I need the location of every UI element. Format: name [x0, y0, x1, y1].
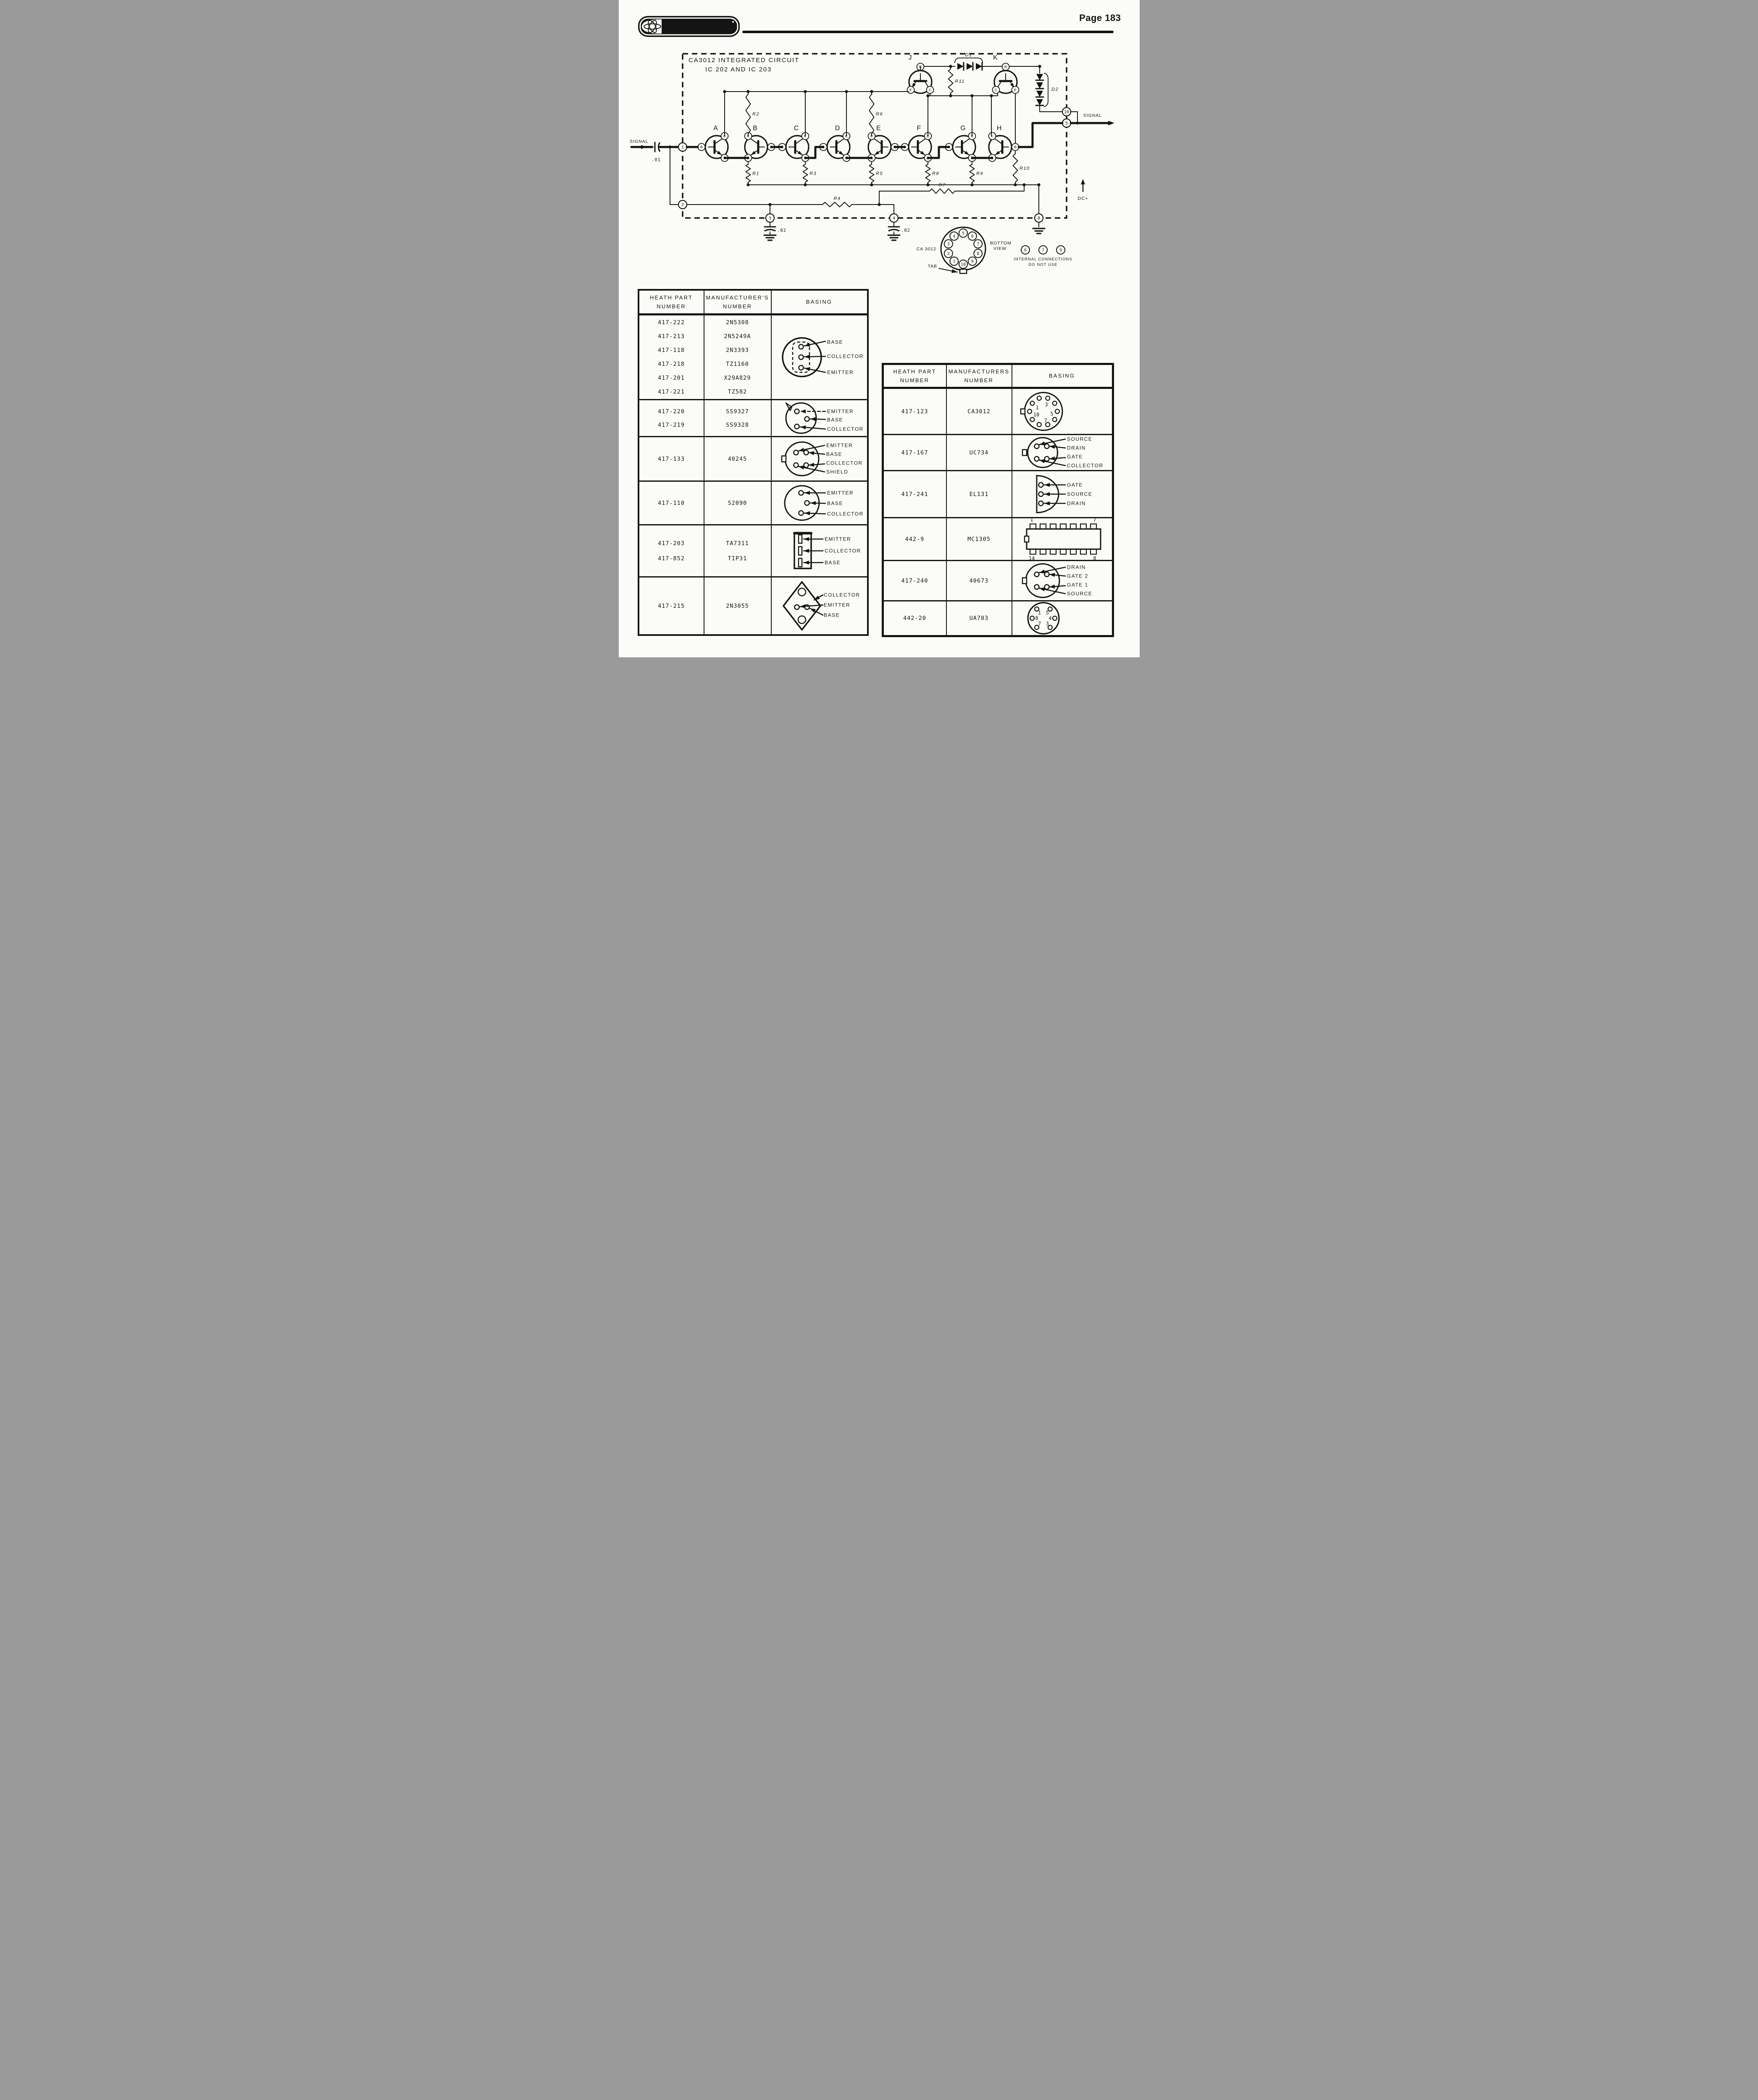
- basing-cell: 17148: [1012, 518, 1112, 560]
- svg-text:3: 3: [1045, 402, 1048, 408]
- tab-notch: [782, 456, 786, 462]
- basing-cell: 158473: [1012, 601, 1112, 635]
- basing-figure: GATESOURCEDRAIN: [1012, 471, 1112, 517]
- transistor-F: CEBF: [901, 125, 931, 162]
- svg-text:R3: R3: [809, 171, 817, 176]
- internal-connections-note: 679INTERNAL CONNECTIONSDO NOT USE: [1014, 246, 1072, 267]
- transistor-basing-table: HEATH PARTNUMBERMANUFACTURER'SNUMBERBASI…: [638, 289, 869, 636]
- manufacturer-number: EL131: [970, 490, 989, 499]
- manufacturer-number: 2N5308: [726, 318, 749, 327]
- heath-part-number: 417-167: [901, 449, 928, 457]
- transistor-B: CEBB: [744, 125, 775, 162]
- heath-part-cell: 417-222417-213417-118417-218417-201417-2…: [639, 315, 704, 399]
- svg-text:R1: R1: [752, 171, 759, 176]
- resistor-R7: R7: [930, 183, 955, 194]
- manufacturer-number: UC734: [970, 449, 989, 457]
- ic-basing-table: HEATH PARTNUMBERMANUFACTURERSNUMBERBASIN…: [882, 363, 1114, 637]
- svg-text:SHIELD: SHIELD: [826, 469, 848, 475]
- svg-text:5: 5: [1065, 121, 1067, 126]
- svg-text:5: 5: [1050, 411, 1053, 417]
- basing-diagram-to5-4pin: EMITTERBASECOLLECTORSHIELD: [782, 442, 863, 476]
- basing-cell: SOURCEDRAINGATECOLLECTOR: [1012, 435, 1112, 470]
- svg-text:A: A: [713, 125, 718, 132]
- column-header: MANUFACTURERSNUMBER: [947, 365, 1012, 387]
- column-header: MANUFACTURER'SNUMBER: [704, 291, 772, 313]
- basing-diagram-dip14: 17148: [1025, 518, 1101, 560]
- heath-part-number: 417-133: [658, 455, 685, 463]
- tab-label: TAB: [928, 264, 937, 269]
- header-line: BASING: [806, 297, 832, 306]
- signal-in-label: SIGNAL: [630, 139, 649, 144]
- basing-cell: EMITTERCOLLECTORBASE: [772, 525, 867, 576]
- svg-text:4: 4: [892, 216, 895, 221]
- svg-text:G: G: [960, 125, 966, 132]
- diode-group-D1: D1: [955, 52, 983, 70]
- basing-figure: BASECOLLECTOREMITTER: [772, 315, 867, 399]
- svg-text:B: B: [753, 125, 758, 132]
- tab-notch: [1022, 450, 1027, 456]
- manufacturer-number: CA3012: [967, 407, 991, 416]
- manufacturer-cell: 2N3055: [704, 577, 772, 634]
- basing-diagram-to5-4pin: DRAINGATE 2GATE 1SOURCE: [1022, 564, 1092, 598]
- svg-text:D: D: [835, 125, 840, 132]
- table-row: 442-9MC130517148: [884, 517, 1112, 560]
- schematic-subtitle: IC 202 AND IC 203: [705, 66, 772, 73]
- svg-text:3: 3: [1046, 621, 1048, 627]
- svg-text:EMITTER: EMITTER: [824, 602, 850, 608]
- heath-part-number: 417-215: [658, 602, 685, 610]
- heath-part-number: 417-123: [901, 407, 928, 416]
- column-header: BASING: [772, 291, 867, 313]
- basing-cell: DRAINGATE 2GATE 1SOURCE: [1012, 561, 1112, 600]
- header-line: NUMBER: [723, 302, 752, 311]
- svg-text:2: 2: [947, 252, 949, 256]
- svg-text:6: 6: [1024, 248, 1027, 253]
- basing-diagram-to5-4pin: SOURCEDRAINGATECOLLECTOR: [1022, 436, 1104, 469]
- basing-diagram-to5-6pin: 158473: [1028, 603, 1059, 634]
- svg-text:R10: R10: [1020, 166, 1030, 171]
- svg-text:D2: D2: [1051, 87, 1059, 92]
- table-row: 417-2152N3055COLLECTOREMITTERBASE: [639, 576, 867, 634]
- heath-part-number: 442-9: [905, 535, 925, 543]
- manufacturer-number: 40673: [970, 577, 989, 585]
- svg-text:EMITTER: EMITTER: [825, 536, 851, 542]
- heath-part-number: 417-221: [658, 388, 685, 396]
- heath-part-cell: 417-241: [884, 471, 947, 517]
- svg-text:R2: R2: [752, 112, 759, 117]
- svg-text:R7: R7: [938, 183, 946, 188]
- header-line: NUMBER: [657, 302, 686, 311]
- heath-part-cell: 442-9: [884, 518, 947, 560]
- transistor-G: CEBG: [945, 125, 975, 162]
- svg-text:D1: D1: [965, 52, 972, 58]
- manufacturer-cell: S2090: [704, 482, 772, 524]
- svg-text:GATE: GATE: [1067, 454, 1083, 460]
- manufacturer-cell: CA3012: [947, 389, 1012, 434]
- svg-text:B: B: [1014, 145, 1017, 149]
- diode-group-D2: D2: [1036, 73, 1059, 107]
- svg-text:4: 4: [1048, 615, 1051, 621]
- svg-text:3: 3: [947, 242, 949, 247]
- basing-diagram-to5-10pin: 131057: [1021, 393, 1062, 430]
- svg-text:7: 7: [977, 242, 979, 247]
- basing-diagram-power-tab: EMITTERCOLLECTORBASE: [794, 533, 861, 569]
- svg-text:DRAIN: DRAIN: [1067, 564, 1086, 570]
- table-row: 417-203417-852TA7311TIP31EMITTERCOLLECTO…: [639, 524, 867, 576]
- svg-text:DRAIN: DRAIN: [1067, 445, 1086, 451]
- manufacturer-number: SS9327: [726, 407, 749, 416]
- manufacturer-number: TZ582: [728, 388, 747, 396]
- resistor-R5: R5: [869, 162, 883, 185]
- svg-text:10: 10: [961, 262, 966, 267]
- svg-text:BASE: BASE: [826, 451, 842, 457]
- svg-text:EMITTER: EMITTER: [826, 443, 853, 449]
- svg-text:COLLECTOR: COLLECTOR: [825, 548, 861, 554]
- basing-cell: COLLECTOREMITTERBASE: [772, 577, 867, 634]
- heath-part-number: 417-222: [658, 318, 685, 327]
- heath-part-number: 442-20: [903, 614, 926, 622]
- svg-text:2: 2: [681, 203, 683, 207]
- svg-text:1: 1: [1030, 518, 1033, 523]
- basing-figure: EMITTERBASECOLLECTORSHIELD: [772, 437, 867, 480]
- header-line: HEATH PART: [650, 293, 693, 302]
- heath-part-cell: 417-110: [639, 482, 704, 524]
- manufacturer-cell: SS9327SS9328: [704, 400, 772, 436]
- basing-figure: 158473: [1012, 601, 1112, 635]
- manufacturer-number: TZ1160: [726, 360, 749, 368]
- basing-diagram-to3: COLLECTOREMITTERBASE: [783, 582, 860, 630]
- ca3012-schematic: CA3012 INTEGRATED CIRCUITIC 202 AND IC 2…: [619, 37, 1140, 283]
- manufacturer-cell: UA703: [947, 601, 1012, 635]
- svg-text:COLLECTOR: COLLECTOR: [1067, 463, 1104, 469]
- svg-text:COLLECTOR: COLLECTOR: [827, 511, 864, 517]
- resistor-R9: R9: [970, 162, 983, 185]
- svg-text:.02: .02: [777, 228, 786, 233]
- tab-notch: [960, 269, 967, 273]
- signal-out-label: SIGNAL: [1083, 113, 1102, 118]
- svg-text:BASE: BASE: [827, 417, 843, 423]
- resistor-R4: R4: [823, 196, 852, 207]
- manufacturer-number: MC1305: [967, 535, 991, 543]
- manufacturer-number: TA7311: [726, 539, 749, 548]
- header-line: MANUFACTURERS: [949, 367, 1010, 376]
- resistor-R10: R10: [1013, 151, 1030, 185]
- basing-cell: GATESOURCEDRAIN: [1012, 471, 1112, 517]
- heath-part-number: 417-110: [658, 499, 685, 507]
- table-row: 417-222417-213417-118417-218417-201417-2…: [639, 314, 867, 399]
- basing-diagram-to92-tab: EMITTERBASECOLLECTOR: [786, 403, 864, 433]
- table-row: 417-13340245EMITTERBASECOLLECTORSHIELD: [639, 436, 867, 480]
- basing-cell: EMITTERBASECOLLECTOR: [772, 482, 867, 524]
- table-row: 417-220417-219SS9327SS9328EMITTERBASECOL…: [639, 399, 867, 436]
- svg-text:C: C: [794, 125, 799, 132]
- heath-part-number: 417-203: [658, 539, 685, 548]
- heath-part-number: 417-118: [658, 346, 685, 354]
- svg-text:E: E: [1014, 88, 1017, 92]
- manufacturer-number: 2N3055: [726, 602, 749, 610]
- page-number: Page 183: [1079, 13, 1121, 24]
- basing-figure: 131057: [1012, 389, 1112, 434]
- manual-page: HEATHKIT Page 183 CA3012 INTEGRATED CIRC…: [619, 0, 1140, 657]
- basing-diagram-dshape-3pin: GATESOURCEDRAIN: [1037, 476, 1092, 513]
- svg-text:COLLECTOR: COLLECTOR: [827, 426, 864, 432]
- svg-text:3: 3: [768, 216, 771, 221]
- basing-cell: EMITTERBASECOLLECTORSHIELD: [772, 437, 867, 480]
- table-row: 417-24040673DRAINGATE 2GATE 1SOURCE: [884, 560, 1112, 600]
- svg-text:GATE 2: GATE 2: [1067, 573, 1088, 579]
- svg-text:GATE: GATE: [1067, 482, 1083, 488]
- transistor-A: CEBA: [698, 125, 728, 162]
- svg-text:R11: R11: [955, 79, 965, 84]
- tab-notch: [1021, 409, 1025, 414]
- basing-cell: BASECOLLECTOREMITTER: [772, 315, 867, 399]
- transistor-K: BCEK: [992, 54, 1019, 94]
- svg-text:R9: R9: [976, 171, 983, 176]
- svg-text:DO NOT USE: DO NOT USE: [1028, 262, 1057, 267]
- svg-text:14: 14: [1028, 556, 1034, 560]
- transistor-J: BECJ: [907, 54, 933, 94]
- dc-plus-label: DC+: [1077, 196, 1088, 201]
- heathkit-logo: HEATHKIT: [637, 15, 741, 38]
- brand-text: HEATHKIT: [673, 23, 725, 31]
- svg-text:1: 1: [1038, 610, 1041, 616]
- basing-figure: DRAINGATE 2GATE 1SOURCE: [1012, 561, 1112, 600]
- svg-text:5: 5: [1046, 610, 1048, 616]
- svg-text:K: K: [993, 54, 998, 61]
- svg-text:EMITTER: EMITTER: [827, 370, 854, 375]
- manufacturer-number: SS9328: [726, 421, 749, 429]
- svg-text:BASE: BASE: [827, 501, 843, 507]
- heath-part-number: 417-220: [658, 407, 685, 416]
- ca3012-bottom-view: 12345678910CA 3012BOTTOMVIEWTAB: [916, 227, 1011, 273]
- manufacturer-cell: 2N53082N5249A2N3393TZ1160X29A829TZ582: [704, 315, 772, 399]
- svg-text:1: 1: [681, 145, 683, 150]
- heath-part-cell: 417-220417-219: [639, 400, 704, 436]
- heath-part-cell: 417-123: [884, 389, 947, 434]
- svg-text:E: E: [909, 88, 912, 92]
- svg-text:1: 1: [1035, 405, 1038, 411]
- svg-text:J: J: [908, 54, 912, 61]
- svg-text:H: H: [996, 125, 1002, 132]
- svg-text:5: 5: [962, 231, 964, 236]
- heath-part-cell: 417-240: [884, 561, 947, 600]
- svg-text:B: B: [700, 145, 703, 149]
- header-line: NUMBER: [964, 376, 994, 385]
- heath-part-number: 417-852: [658, 554, 685, 563]
- resistor-R1: R1: [746, 162, 759, 185]
- svg-text:7: 7: [1044, 418, 1047, 424]
- column-header: HEATH PARTNUMBER: [639, 291, 704, 313]
- heath-part-cell: 417-133: [639, 437, 704, 480]
- header-line: HEATH PART: [893, 367, 936, 376]
- svg-text:DRAIN: DRAIN: [1067, 501, 1086, 507]
- heath-part-cell: 442-20: [884, 601, 947, 635]
- svg-text:COLLECTOR: COLLECTOR: [827, 354, 864, 360]
- basing-figure: EMITTERBASECOLLECTOR: [772, 400, 867, 436]
- svg-text:R6: R6: [876, 112, 883, 117]
- svg-text:7: 7: [1038, 621, 1041, 627]
- table-row: 442-20UA703158473: [884, 600, 1112, 635]
- notch: [1025, 536, 1029, 542]
- header-rule: [742, 31, 1114, 33]
- table-row: 417-167UC734SOURCEDRAINGATECOLLECTOR: [884, 434, 1112, 470]
- manufacturer-number: 2N3393: [726, 346, 749, 354]
- manufacturer-cell: 40673: [947, 561, 1012, 600]
- transistor-H: CEBH: [988, 125, 1019, 162]
- tab-notch: [1022, 578, 1027, 584]
- header-line: MANUFACTURER'S: [706, 293, 769, 302]
- svg-text:.02: .02: [901, 228, 910, 233]
- basing-diagram-to92-dashed: BASECOLLECTOREMITTER: [783, 338, 864, 377]
- svg-text:COLLECTOR: COLLECTOR: [826, 460, 863, 466]
- basing-figure: SOURCEDRAINGATECOLLECTOR: [1012, 435, 1112, 470]
- manufacturer-number: 40245: [728, 455, 747, 463]
- svg-text:B: B: [1004, 65, 1007, 69]
- svg-text:1: 1: [953, 259, 955, 264]
- svg-text:7: 7: [1093, 518, 1096, 523]
- svg-text:EMITTER: EMITTER: [827, 490, 854, 496]
- transistor-C: CEBC: [778, 125, 809, 162]
- manufacturer-cell: 40245: [704, 437, 772, 480]
- svg-text:BASE: BASE: [827, 339, 843, 345]
- table-row: 417-110S2090EMITTERBASECOLLECTOR: [639, 480, 867, 524]
- manufacturer-cell: TA7311TIP31: [704, 525, 772, 576]
- svg-text:10: 10: [1033, 412, 1039, 418]
- svg-text:E: E: [876, 125, 881, 132]
- manufacturer-number: UA703: [970, 614, 989, 622]
- svg-text:SOURCE: SOURCE: [1067, 436, 1092, 442]
- table-header-row: HEATH PARTNUMBERMANUFACTURERSNUMBERBASIN…: [884, 365, 1112, 388]
- resistor-R3: R3: [803, 162, 817, 185]
- table-row: 417-241EL131GATESOURCEDRAIN: [884, 470, 1112, 517]
- heathkit-logo-art: HEATHKIT: [637, 15, 741, 38]
- basing-cell: 131057: [1012, 389, 1112, 434]
- svg-text:F: F: [917, 125, 921, 132]
- manufacturer-number: TIP31: [728, 554, 747, 563]
- svg-text:GATE 1: GATE 1: [1067, 582, 1088, 588]
- svg-text:C: C: [994, 88, 997, 92]
- svg-text:4: 4: [953, 234, 955, 239]
- heath-part-number: 417-241: [901, 490, 928, 499]
- svg-text:8: 8: [1035, 615, 1038, 621]
- basing-figure: EMITTERBASECOLLECTOR: [772, 482, 867, 524]
- svg-text:9: 9: [971, 259, 973, 264]
- basing-figure: COLLECTOREMITTERBASE: [772, 577, 867, 634]
- svg-text:R5: R5: [876, 171, 883, 176]
- header-line: NUMBER: [900, 376, 930, 385]
- heath-part-cell: 417-203417-852: [639, 525, 704, 576]
- transistor-D: CEBD: [820, 125, 850, 162]
- svg-text:8: 8: [977, 252, 979, 256]
- heath-part-cell: 417-215: [639, 577, 704, 634]
- svg-text:SOURCE: SOURCE: [1067, 591, 1092, 597]
- resistor-R8: R8: [925, 162, 939, 185]
- header-line: BASING: [1049, 371, 1075, 380]
- table-row: 417-123CA3012131057: [884, 388, 1112, 434]
- svg-text:VIEW: VIEW: [993, 246, 1006, 251]
- column-header: BASING: [1012, 365, 1112, 387]
- svg-text:BOTTOM: BOTTOM: [990, 241, 1012, 246]
- svg-text:7: 7: [1042, 248, 1044, 253]
- heath-part-number: 417-213: [658, 332, 685, 341]
- manufacturer-cell: UC734: [947, 435, 1012, 470]
- manufacturer-number: X29A829: [724, 374, 751, 382]
- table-header-row: HEATH PARTNUMBERMANUFACTURER'SNUMBERBASI…: [639, 291, 867, 314]
- schematic-title: CA3012 INTEGRATED CIRCUIT: [688, 57, 799, 64]
- svg-text:8: 8: [1093, 556, 1096, 560]
- svg-text:BASE: BASE: [825, 560, 841, 566]
- manufacturer-cell: EL131: [947, 471, 1012, 517]
- basing-figure: 17148: [1012, 518, 1112, 560]
- manufacturer-cell: MC1305: [947, 518, 1012, 560]
- svg-text:8: 8: [1037, 216, 1040, 221]
- svg-text:10: 10: [1064, 110, 1069, 115]
- transistor-E: CEBE: [868, 125, 898, 162]
- resistor-R11: R11: [948, 66, 964, 96]
- heath-part-number: 417-201: [658, 374, 685, 382]
- bottomview-ic-label: CA 3012: [916, 247, 936, 252]
- input-cap-value: .01: [652, 157, 661, 163]
- column-header: HEATH PARTNUMBER: [884, 365, 947, 387]
- manufacturer-number: 2N5249A: [724, 332, 751, 341]
- heath-part-number: 417-219: [658, 421, 685, 429]
- svg-text:INTERNAL CONNECTIONS: INTERNAL CONNECTIONS: [1014, 257, 1072, 262]
- svg-text:C: C: [928, 88, 931, 92]
- svg-text:BASE: BASE: [824, 612, 840, 618]
- heath-part-cell: 417-167: [884, 435, 947, 470]
- svg-text:R4: R4: [833, 196, 841, 201]
- basing-cell: EMITTERBASECOLLECTOR: [772, 400, 867, 436]
- basing-diagram-to5-3pin: EMITTERBASECOLLECTOR: [785, 486, 864, 520]
- svg-text:SOURCE: SOURCE: [1067, 491, 1092, 497]
- manufacturer-number: S2090: [728, 499, 747, 507]
- svg-text:9: 9: [1059, 248, 1062, 253]
- svg-text:6: 6: [971, 234, 973, 239]
- svg-text:R8: R8: [932, 171, 939, 176]
- heath-part-number: 417-240: [901, 577, 928, 585]
- basing-figure: EMITTERCOLLECTORBASE: [772, 525, 867, 576]
- heath-part-number: 417-218: [658, 360, 685, 368]
- svg-text:EMITTER: EMITTER: [827, 409, 854, 415]
- svg-text:COLLECTOR: COLLECTOR: [824, 592, 860, 598]
